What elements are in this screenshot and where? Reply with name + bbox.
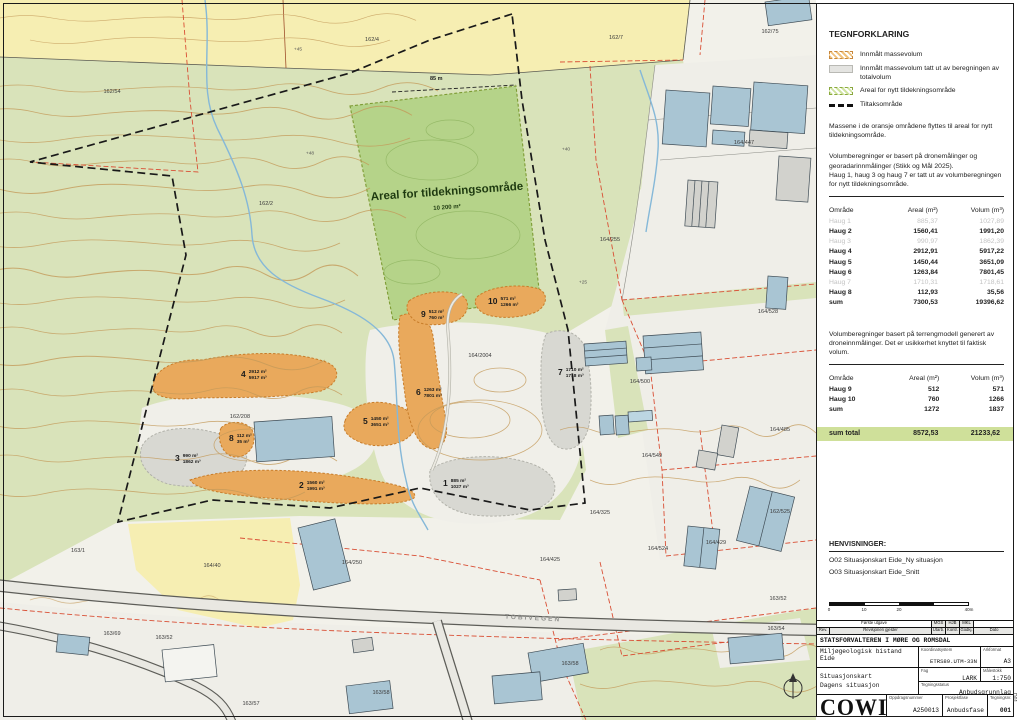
project-name: Miljøgeologisk bistand Eide bbox=[817, 647, 918, 663]
scale-tick-10: 10 bbox=[861, 607, 866, 612]
table-cell: 512 bbox=[880, 384, 939, 394]
table-cell: 1272 bbox=[880, 405, 939, 415]
table-cell: Haug 10 bbox=[829, 395, 880, 405]
title-block: Første utgave MGS HJB MKL Rev. Revisjone… bbox=[817, 620, 1014, 717]
revision-date bbox=[974, 621, 1014, 627]
legend-item: Areal for nytt tildekningsområde bbox=[829, 87, 1004, 96]
revision-initial-3: MKL bbox=[960, 621, 974, 627]
table-cell: 1263,84 bbox=[878, 267, 938, 277]
scale-value: 1:750 bbox=[981, 674, 1014, 681]
table-cell: Haug 8 bbox=[829, 287, 878, 297]
dato-header: Dato bbox=[974, 628, 1014, 634]
table-cell: 7801,45 bbox=[938, 267, 1004, 277]
table-row: Haug 3990,971862,39 bbox=[829, 237, 1004, 247]
table-row: sum12721837 bbox=[829, 405, 1004, 415]
table-row: Haug 107601266 bbox=[829, 395, 1004, 405]
table-row: Haug 61263,847801,45 bbox=[829, 267, 1004, 277]
legend-title: TEGNFORKLARING bbox=[829, 29, 1004, 39]
henvisninger-title: HENVISNINGER: bbox=[829, 539, 1004, 552]
scale-tick-20: 20 bbox=[896, 607, 901, 612]
henvisninger: HENVISNINGER: O02 Situasjonskart Eide_Ny… bbox=[829, 539, 1004, 576]
table-row: Haug 9512571 bbox=[829, 384, 1004, 394]
table1-header-omrade: Område bbox=[829, 205, 878, 216]
drawing-number-value: 001 bbox=[988, 706, 1014, 716]
coord-value: ETRS89.UTM-33N bbox=[919, 658, 980, 667]
rev-col-header: Rev. bbox=[817, 628, 830, 634]
rev-desc-header: Revisjonen gjelder bbox=[830, 628, 932, 634]
legend-panel: TEGNFORKLARING Innmålt massevolumInnmålt… bbox=[816, 3, 1014, 717]
table-cell: Haug 3 bbox=[829, 237, 878, 247]
phase-label: Prosjektfase bbox=[943, 695, 987, 701]
table-row: Haug 1885,371027,89 bbox=[829, 216, 1004, 226]
table-cell: 3651,09 bbox=[938, 257, 1004, 267]
table-cell: 1450,44 bbox=[878, 257, 938, 267]
legend-item-label: Areal for nytt tildekningsområde bbox=[860, 87, 956, 96]
table-row: Haug 71710,311718,61 bbox=[829, 277, 1004, 287]
sum-total-label: sum total bbox=[829, 430, 887, 437]
godkj-header: Godkj. bbox=[960, 628, 974, 634]
order-label: Oppdragsnummer bbox=[887, 695, 942, 701]
table-cell: 990,97 bbox=[878, 237, 938, 247]
table-cell: 112,93 bbox=[878, 287, 938, 297]
drawing-sheet: Areal for tildekningsområde 10 200 m² 85… bbox=[0, 0, 1017, 720]
kontr-header: Kontr. bbox=[946, 628, 960, 634]
table-cell: Haug 1 bbox=[829, 216, 878, 226]
table-cell: 19396,62 bbox=[938, 298, 1004, 308]
henvisning-item: O02 Situasjonskart Eide_Ny situasjon bbox=[829, 557, 1004, 564]
table-cell: 1266 bbox=[939, 395, 1004, 405]
drawing-title-line2: Dagens situasjon bbox=[817, 681, 918, 690]
legend-item: Innmålt massevolum bbox=[829, 51, 1004, 60]
table-cell: 1862,39 bbox=[938, 237, 1004, 247]
phase-value: Anbudsfase bbox=[943, 706, 987, 716]
table-cell: Haug 7 bbox=[829, 277, 878, 287]
table-cell: 760 bbox=[880, 395, 939, 405]
table-cell: 35,56 bbox=[938, 287, 1004, 297]
table-row: Haug 51450,443651,09 bbox=[829, 257, 1004, 267]
black-dash-swatch-icon bbox=[829, 104, 853, 108]
revision-initial-1: MGS bbox=[932, 621, 946, 627]
note-terrain: Volumberegninger basert på terrengmodell… bbox=[829, 330, 1004, 366]
sum-total-volum: 21233,62 bbox=[938, 430, 1000, 437]
table-cell: Haug 2 bbox=[829, 226, 878, 236]
table-row: Haug 21560,411991,20 bbox=[829, 226, 1004, 236]
legend-item-label: Innmålt massevolum bbox=[860, 51, 922, 60]
format-label: Arkformat bbox=[981, 647, 1014, 653]
revision-initial-2: HJB bbox=[946, 621, 960, 627]
drawing-title-line1: Situasjonskart bbox=[817, 672, 918, 681]
table-cell: 1560,41 bbox=[878, 226, 938, 236]
client-name: STATSFORVALTEREN I MØRE OG ROMSDAL bbox=[817, 636, 1014, 645]
legend-items: Innmålt massevolumInnmålt massevolum tat… bbox=[829, 51, 1004, 110]
gray-swatch-icon bbox=[829, 65, 853, 73]
scale-bar: 0 10 20 40m bbox=[829, 602, 979, 614]
format-value: A3 bbox=[981, 657, 1014, 667]
table-row: Haug 8112,9335,56 bbox=[829, 287, 1004, 297]
table-cell: 2912,91 bbox=[878, 247, 938, 257]
table-cell: Haug 5 bbox=[829, 257, 878, 267]
table-cell: Haug 9 bbox=[829, 384, 880, 394]
table-cell: 7300,53 bbox=[878, 298, 938, 308]
utarb-header: Utarb. bbox=[932, 628, 946, 634]
legend-item: Innmålt massevolum tatt ut av beregninge… bbox=[829, 65, 1004, 83]
table-cell: 5917,22 bbox=[938, 247, 1004, 257]
table-cell: 1718,61 bbox=[938, 277, 1004, 287]
coord-label: Koordinatsystem bbox=[919, 647, 980, 653]
table1-header-areal: Areal (m²) bbox=[878, 205, 938, 216]
table-cell: Haug 4 bbox=[829, 247, 878, 257]
table1-header-volum: Volum (m³) bbox=[938, 205, 1004, 216]
table-cell: sum bbox=[829, 298, 878, 308]
orange-hatch-swatch-icon bbox=[829, 51, 853, 59]
sum-total-areal: 8572,53 bbox=[887, 430, 938, 437]
table-cell: 1991,20 bbox=[938, 226, 1004, 236]
legend-item-label: Tiltaksområde bbox=[860, 101, 902, 110]
legend-item: Tiltaksområde bbox=[829, 101, 1004, 110]
sum-total-row: sum total 8572,53 21233,62 bbox=[817, 427, 1014, 441]
legend-item-label: Innmålt massevolum tatt ut av beregninge… bbox=[860, 65, 1004, 83]
cowi-logo: COWI bbox=[817, 695, 886, 717]
table-cell: Haug 6 bbox=[829, 267, 878, 277]
table-row: Haug 42912,915917,22 bbox=[829, 247, 1004, 257]
table-cell: 1837 bbox=[939, 405, 1004, 415]
table2-header-omrade: Område bbox=[829, 373, 880, 384]
scale-tick-0: 0 bbox=[828, 607, 831, 612]
map-canvas bbox=[0, 0, 816, 720]
order-value: A250013 bbox=[887, 706, 942, 716]
henvisning-item: O03 Situasjonskart Eide_Snitt bbox=[829, 569, 1004, 576]
note-orange: Massene i de oransje områdene flyttes ti… bbox=[829, 122, 1004, 140]
scale-tick-40: 40m bbox=[965, 607, 974, 612]
volume-table-1: Område Areal (m²) Volum (m³) Haug 1885,3… bbox=[829, 205, 1004, 308]
revision-entry-desc: Første utgave bbox=[817, 621, 932, 627]
table-cell: 1027,89 bbox=[938, 216, 1004, 226]
table-cell: sum bbox=[829, 405, 880, 415]
fag-value: LARK bbox=[919, 674, 980, 681]
status-value: Anbudsgrunnlag bbox=[919, 688, 1014, 694]
sheet-side-code: D01 bbox=[1011, 693, 1017, 702]
table-row: sum7300,5319396,62 bbox=[829, 298, 1004, 308]
green-hatch-swatch-icon bbox=[829, 87, 853, 95]
note-volume: Volumberegninger er basert på dronemålin… bbox=[829, 152, 1004, 197]
table-cell: 885,37 bbox=[878, 216, 938, 226]
table2-header-volum: Volum (m³) bbox=[939, 373, 1004, 384]
volume-table-2: Område Areal (m²) Volum (m³) Haug 951257… bbox=[829, 373, 1004, 415]
table-cell: 1710,31 bbox=[878, 277, 938, 287]
table2-header-areal: Areal (m²) bbox=[880, 373, 939, 384]
table-cell: 571 bbox=[939, 384, 1004, 394]
